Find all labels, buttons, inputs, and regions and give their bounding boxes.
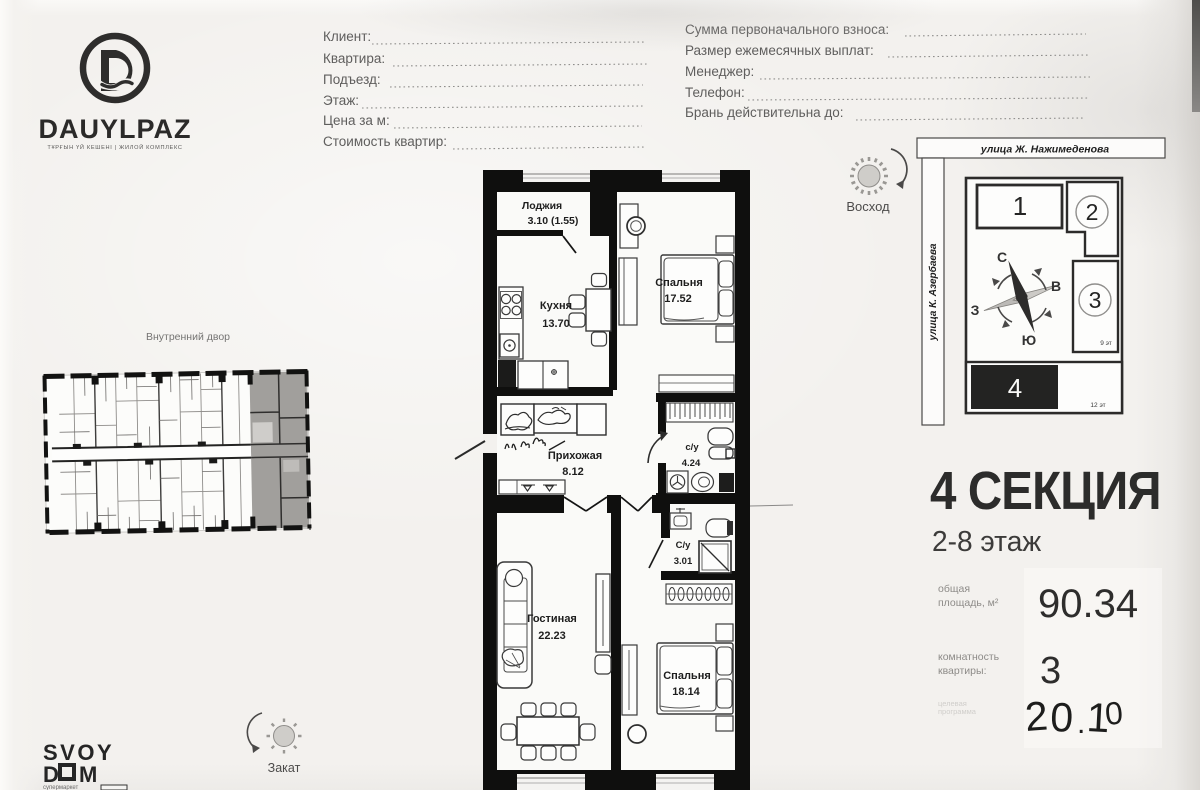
- svg-text:4 СЕКЦИЯ: 4 СЕКЦИЯ: [930, 460, 1161, 521]
- svg-text:2-8 этаж: 2-8 этаж: [932, 526, 1041, 558]
- svg-text:С/у: С/у: [676, 540, 692, 551]
- svg-text:2: 2: [1086, 199, 1099, 225]
- svg-text:супермаркет: супермаркет: [43, 785, 79, 790]
- svg-text:В: В: [1051, 278, 1061, 294]
- svg-text:Лоджия: Лоджия: [522, 200, 562, 212]
- svg-text:улица Ж. Нажимеденова: улица Ж. Нажимеденова: [980, 144, 1109, 156]
- svg-text:Спальня: Спальня: [655, 277, 703, 289]
- svg-text:17.52: 17.52: [664, 293, 692, 305]
- svg-text:22.23: 22.23: [538, 630, 566, 642]
- svg-text:3.10 (1.55): 3.10 (1.55): [528, 215, 579, 227]
- svg-text:Кухня: Кухня: [540, 300, 572, 312]
- svg-text:З: З: [971, 302, 980, 318]
- svg-text:12 эт: 12 эт: [1090, 402, 1105, 409]
- svg-text:90.34: 90.34: [1038, 582, 1138, 626]
- svg-text:Прихожая: Прихожая: [548, 450, 602, 462]
- svg-text:площадь, м²: площадь, м²: [938, 597, 999, 609]
- svg-text:0: 0: [1103, 695, 1124, 732]
- svg-text:Гостиная: Гостиная: [527, 613, 577, 625]
- svg-text:.: .: [1077, 707, 1085, 740]
- svg-text:Сумма первоначального взноса:: Сумма первоначального взноса:: [685, 22, 889, 37]
- svg-text:1: 1: [1013, 191, 1027, 221]
- svg-text:улица К. Азербаева: улица К. Азербаева: [927, 243, 939, 341]
- svg-text:общая: общая: [938, 583, 970, 595]
- svg-text:Ю: Ю: [1022, 332, 1036, 348]
- svg-text:программа: программа: [938, 707, 977, 716]
- svg-text:ТҰРҒЫН ҮЙ КЕШЕНІ | ЖИЛОЙ КОМ: ТҰРҒЫН ҮЙ КЕШЕНІ | ЖИЛОЙ КОМПЛЕКС: [47, 143, 182, 151]
- svg-text:Этаж:: Этаж:: [323, 93, 359, 108]
- svg-text:DAUYLPAZ: DAUYLPAZ: [39, 114, 192, 144]
- svg-text:M: M: [79, 762, 97, 787]
- svg-text:Закат: Закат: [268, 761, 301, 775]
- svg-text:4: 4: [1008, 373, 1022, 403]
- svg-text:3.01: 3.01: [674, 556, 693, 567]
- svg-text:квартиры:: квартиры:: [938, 665, 986, 677]
- svg-text:Восход: Восход: [846, 199, 890, 214]
- svg-text:18.14: 18.14: [672, 686, 700, 698]
- svg-text:9 эт: 9 эт: [1100, 340, 1112, 347]
- svg-text:Размер ежемесячных выплат:: Размер ежемесячных выплат:: [685, 43, 874, 58]
- svg-text:Спальня: Спальня: [663, 670, 711, 682]
- svg-text:13.70: 13.70: [542, 318, 570, 330]
- svg-text:Клиент:: Клиент:: [323, 29, 371, 44]
- svg-text:комнатность: комнатность: [938, 651, 1000, 663]
- svg-text:8.12: 8.12: [562, 466, 583, 478]
- svg-text:4.24: 4.24: [682, 458, 701, 469]
- svg-text:Менеджер:: Менеджер:: [685, 64, 754, 79]
- svg-text:3: 3: [1089, 287, 1102, 313]
- svg-text:Подъезд:: Подъезд:: [323, 72, 381, 87]
- svg-text:Квартира:: Квартира:: [323, 51, 385, 66]
- svg-text:Брань действительна до:: Брань действительна до:: [685, 105, 844, 120]
- svg-text:Телефон:: Телефон:: [685, 85, 745, 100]
- svg-text:с/у: с/у: [685, 442, 699, 453]
- svg-text:Стоимость квартир:: Стоимость квартир:: [323, 134, 447, 149]
- svg-text:Цена за м:: Цена за м:: [323, 113, 390, 128]
- svg-text:Внутренний двор: Внутренний двор: [146, 331, 230, 343]
- svg-text:3: 3: [1040, 650, 1061, 692]
- svg-text:С: С: [997, 249, 1007, 265]
